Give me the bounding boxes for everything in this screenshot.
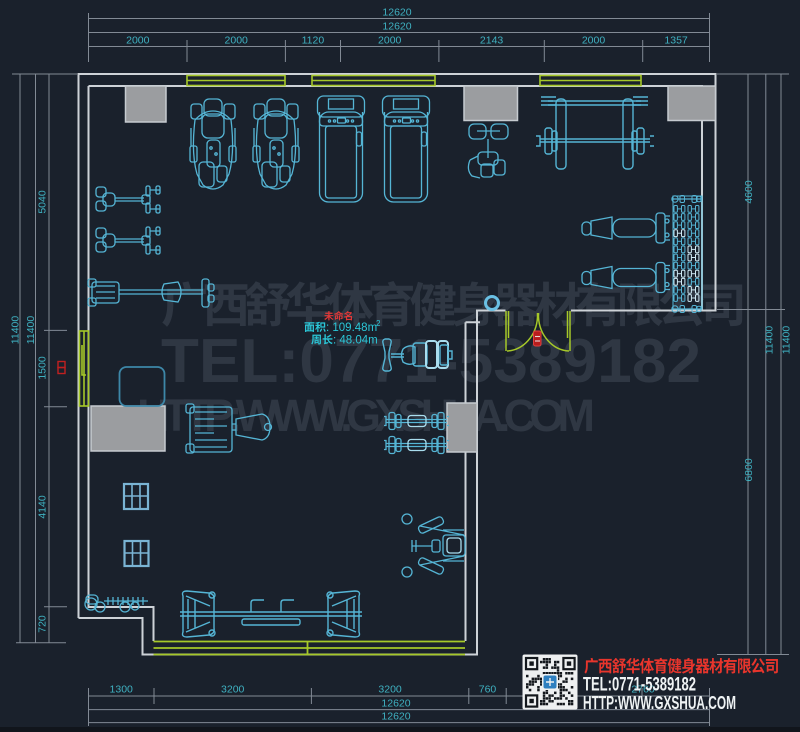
svg-text:2: 2	[376, 319, 381, 328]
svg-text:720: 720	[37, 615, 49, 633]
svg-text:2000: 2000	[378, 35, 402, 47]
svg-text:3200: 3200	[221, 684, 245, 696]
svg-text:TEL:0771-5389182: TEL:0771-5389182	[161, 327, 701, 396]
svg-text:12620: 12620	[382, 7, 411, 19]
svg-text:1300: 1300	[110, 684, 134, 696]
svg-text:: 48.04m: : 48.04m	[333, 335, 378, 347]
svg-text:4140: 4140	[37, 495, 49, 519]
svg-text:1120: 1120	[302, 35, 325, 47]
svg-text:12620: 12620	[381, 698, 410, 710]
svg-text:5040: 5040	[37, 190, 49, 214]
svg-text:: 109.48m: : 109.48m	[326, 322, 377, 334]
svg-text:11400: 11400	[25, 316, 37, 345]
svg-text:4600: 4600	[743, 180, 755, 204]
svg-text:11400: 11400	[764, 326, 776, 355]
svg-text:1357: 1357	[664, 35, 688, 47]
svg-text:760: 760	[479, 684, 497, 696]
svg-text:2000: 2000	[225, 35, 249, 47]
svg-text:1500: 1500	[37, 356, 49, 380]
svg-text:12620: 12620	[382, 21, 411, 33]
svg-text:3200: 3200	[378, 684, 402, 696]
svg-text:2000: 2000	[126, 35, 150, 47]
svg-text:11400: 11400	[781, 326, 793, 355]
svg-text:2143: 2143	[480, 35, 504, 47]
svg-text:11400: 11400	[10, 316, 22, 345]
svg-text:6800: 6800	[743, 458, 755, 482]
svg-text:HTTP:WWW.GXSHUA.COM: HTTP:WWW.GXSHUA.COM	[583, 693, 736, 713]
svg-text:2000: 2000	[582, 35, 606, 47]
svg-text:12620: 12620	[381, 711, 410, 723]
